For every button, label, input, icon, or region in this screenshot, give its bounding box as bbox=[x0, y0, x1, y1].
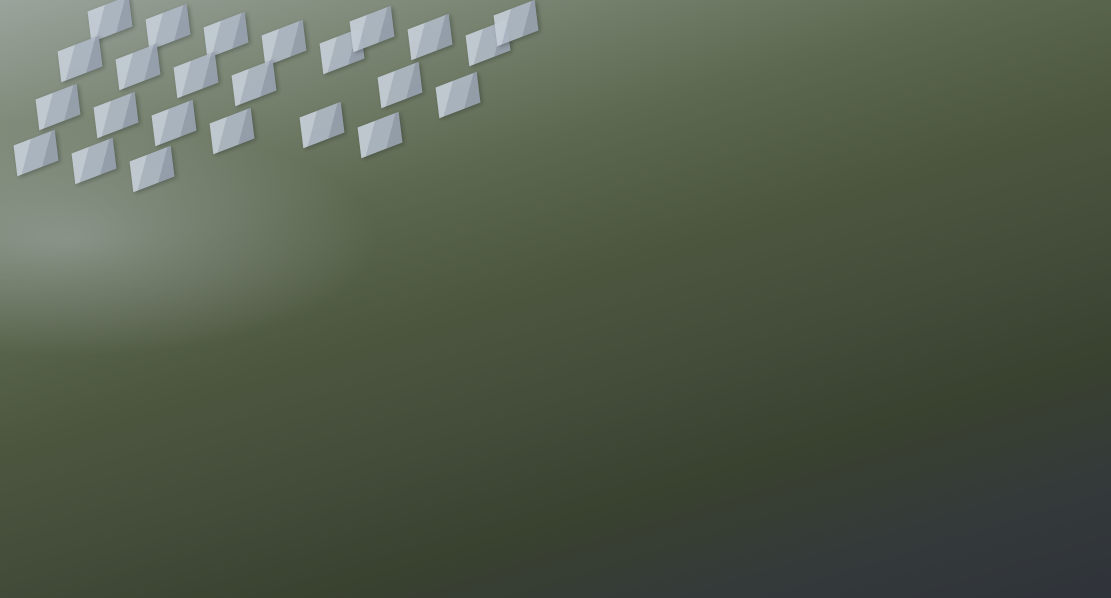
garden-hedge-row bbox=[265, 299, 364, 347]
tower-facade bbox=[768, 235, 856, 347]
tree bbox=[24, 144, 52, 169]
golden-tree bbox=[725, 397, 736, 408]
tree bbox=[750, 420, 774, 441]
garden-hedge-row bbox=[822, 365, 942, 422]
pool-deck bbox=[421, 214, 668, 414]
tree bbox=[345, 155, 367, 174]
background-forest-layer bbox=[0, 0, 1111, 598]
tree bbox=[220, 380, 244, 401]
residential-tower bbox=[336, 128, 434, 327]
garden-hedge-row bbox=[602, 320, 771, 395]
garden-hedge-row bbox=[593, 487, 745, 556]
tree bbox=[976, 240, 1008, 268]
neighboring-building bbox=[492, 540, 638, 576]
neighboring-building bbox=[146, 548, 282, 580]
tree bbox=[631, 351, 653, 370]
context-tower bbox=[1056, 0, 1111, 91]
tree bbox=[908, 288, 932, 309]
tree bbox=[230, 102, 258, 127]
garden-hedge-row bbox=[741, 425, 893, 494]
tree bbox=[235, 485, 265, 511]
tree bbox=[336, 518, 364, 543]
context-building-block bbox=[146, 4, 191, 50]
tree bbox=[212, 182, 244, 210]
tree bbox=[651, 301, 673, 320]
tree bbox=[578, 518, 602, 539]
tree bbox=[135, 525, 165, 551]
tree bbox=[765, 51, 795, 77]
context-tower bbox=[725, 22, 827, 195]
golden-tree bbox=[641, 227, 652, 238]
road-path bbox=[331, 309, 403, 343]
tree bbox=[63, 325, 101, 358]
context-tower bbox=[1036, 205, 1111, 422]
road-main bbox=[979, 392, 1061, 598]
tree bbox=[76, 466, 104, 491]
courtyard bbox=[510, 140, 640, 258]
golden-tree bbox=[921, 475, 931, 485]
haze-overlay bbox=[0, 0, 1111, 598]
golden-tree bbox=[939, 495, 949, 505]
tower-facade bbox=[340, 157, 430, 307]
residential-tower bbox=[688, 178, 762, 340]
slab-buildings-layer bbox=[0, 0, 1111, 598]
tower-facade bbox=[559, 51, 636, 219]
tree bbox=[830, 370, 854, 391]
aerial-rendering bbox=[0, 0, 1111, 598]
residential-slab bbox=[270, 244, 365, 341]
tree bbox=[131, 133, 161, 159]
golden-tree bbox=[683, 477, 694, 488]
road-path bbox=[433, 231, 548, 281]
tree bbox=[294, 184, 318, 205]
tree bbox=[437, 549, 463, 572]
golden-tree bbox=[498, 222, 510, 234]
tree bbox=[413, 301, 435, 320]
golden-tree bbox=[926, 516, 935, 525]
residential-slab bbox=[469, 192, 543, 292]
tree bbox=[1046, 466, 1074, 491]
golden-tree bbox=[650, 288, 662, 300]
golden-tree bbox=[447, 397, 457, 407]
golden-tree bbox=[553, 373, 564, 384]
golden-tree bbox=[464, 250, 476, 262]
tree bbox=[11, 39, 45, 69]
road-path bbox=[620, 223, 726, 270]
golden-tree bbox=[414, 340, 426, 352]
neighboring-building bbox=[0, 468, 44, 500]
road-dark bbox=[114, 388, 956, 561]
tree bbox=[1055, 369, 1089, 399]
tree bbox=[655, 49, 677, 68]
tree bbox=[491, 421, 513, 440]
roads-layer bbox=[0, 0, 1111, 598]
sales-main bbox=[858, 390, 1029, 573]
tree bbox=[1007, 391, 1037, 417]
rendering-page bbox=[0, 0, 1111, 598]
context-building-block bbox=[14, 130, 59, 176]
golden-tree bbox=[845, 307, 855, 317]
tree bbox=[820, 88, 852, 116]
residential-slab bbox=[204, 319, 357, 440]
neighboring-building bbox=[14, 516, 122, 550]
context-tower bbox=[988, 146, 1091, 324]
golden-tree bbox=[514, 170, 526, 182]
vehicle-bus_white bbox=[974, 429, 985, 450]
context-buildings-layer bbox=[0, 0, 1111, 598]
road-dark bbox=[0, 465, 588, 579]
garden-hedge-row bbox=[464, 260, 540, 299]
tree bbox=[6, 486, 34, 511]
context-building-block bbox=[36, 84, 81, 130]
garden-hedge-row bbox=[572, 267, 649, 307]
context-building-block bbox=[494, 0, 539, 46]
tree bbox=[496, 76, 516, 94]
vehicle-bus_blue bbox=[233, 223, 251, 237]
sales-white bbox=[835, 462, 883, 525]
golden-tree bbox=[622, 262, 634, 274]
road-east bbox=[1006, 493, 1111, 545]
tree bbox=[650, 490, 674, 511]
tree bbox=[809, 547, 835, 570]
neighboring-building bbox=[418, 580, 538, 598]
tree bbox=[251, 291, 273, 310]
tree bbox=[159, 229, 193, 259]
tree bbox=[538, 560, 562, 581]
residential-slab bbox=[376, 260, 510, 372]
vehicle-car_dark bbox=[1013, 469, 1022, 482]
tree bbox=[318, 84, 342, 105]
neighboring-building bbox=[186, 490, 334, 528]
tree bbox=[984, 446, 1008, 467]
tree bbox=[683, 529, 705, 548]
context-building-block bbox=[58, 36, 103, 82]
context-building-block bbox=[72, 138, 117, 184]
tree bbox=[952, 402, 976, 423]
tree bbox=[395, 125, 417, 144]
tree bbox=[711, 331, 733, 350]
garden-hedge-row bbox=[370, 315, 510, 379]
golden-tree bbox=[873, 427, 884, 438]
neighborhood-layer bbox=[0, 0, 1111, 598]
context-tower bbox=[967, 54, 1087, 213]
golden-tree bbox=[442, 270, 454, 282]
residential-slab bbox=[598, 428, 744, 548]
context-building-block bbox=[174, 52, 219, 98]
tree bbox=[110, 280, 146, 312]
context-building-block bbox=[232, 60, 277, 106]
tree bbox=[637, 543, 663, 566]
residential-slab bbox=[577, 206, 652, 301]
tree bbox=[842, 190, 870, 215]
tree bbox=[470, 370, 494, 391]
amenity-layer bbox=[0, 0, 1111, 598]
neighboring-building bbox=[338, 514, 486, 552]
vehicle-car_blue bbox=[994, 549, 1003, 562]
tree bbox=[972, 110, 1000, 135]
context-building-block bbox=[88, 0, 133, 42]
garden-hedge-row bbox=[370, 413, 510, 477]
residential-tower bbox=[450, 76, 538, 268]
golden-tree bbox=[815, 297, 826, 308]
road-path bbox=[145, 0, 344, 128]
context-building-block bbox=[358, 112, 403, 158]
tree bbox=[45, 545, 75, 571]
context-building-block bbox=[300, 102, 345, 148]
tree bbox=[871, 131, 901, 157]
golden-tree bbox=[387, 353, 398, 364]
pool-pavilion bbox=[543, 261, 580, 309]
tower-facade bbox=[128, 238, 227, 330]
tree bbox=[929, 191, 959, 217]
golden-tree bbox=[893, 447, 903, 457]
tree bbox=[258, 154, 282, 175]
tree bbox=[859, 409, 881, 428]
foreground-trees-layer bbox=[0, 0, 1111, 598]
golden-tree bbox=[940, 536, 949, 545]
tree bbox=[320, 420, 344, 441]
residential-slab bbox=[565, 346, 720, 468]
residential-slab bbox=[746, 370, 891, 486]
tower-buildings-layer bbox=[0, 0, 1111, 598]
tree bbox=[592, 252, 612, 270]
tree bbox=[199, 287, 229, 313]
garden-hedge-row bbox=[559, 403, 721, 475]
golden-tree bbox=[595, 149, 605, 159]
context-building-block bbox=[378, 62, 423, 108]
tree bbox=[1027, 289, 1061, 319]
tree bbox=[742, 507, 768, 530]
tree bbox=[130, 370, 166, 402]
sunken-garden bbox=[494, 308, 582, 380]
residential-slab bbox=[771, 294, 872, 369]
road-dark bbox=[82, 416, 148, 561]
residential-slab bbox=[403, 409, 563, 534]
tree bbox=[0, 397, 33, 427]
tree bbox=[21, 243, 51, 269]
residential-tower bbox=[764, 206, 860, 366]
garden-hedge-row bbox=[793, 333, 841, 398]
context-building-block bbox=[152, 100, 197, 146]
vehicles-people-layer bbox=[0, 0, 1111, 598]
residential-slab bbox=[607, 261, 770, 388]
sales-annex bbox=[846, 491, 953, 591]
context-tower bbox=[934, 0, 1047, 132]
golden-tree bbox=[563, 143, 573, 153]
golden-tree bbox=[751, 457, 762, 468]
golden-tree bbox=[407, 175, 417, 185]
tree bbox=[91, 101, 125, 131]
tree bbox=[548, 410, 572, 431]
residential-slab bbox=[224, 392, 370, 512]
pool bbox=[466, 251, 624, 365]
tree bbox=[71, 179, 105, 209]
tower-facade bbox=[691, 200, 759, 325]
residential-slab bbox=[827, 314, 942, 414]
vignette-overlay bbox=[0, 0, 1111, 598]
sales-upper bbox=[878, 375, 949, 439]
golden-tree bbox=[421, 387, 431, 397]
tree bbox=[288, 318, 312, 339]
context-building-block bbox=[408, 14, 453, 60]
tree bbox=[947, 321, 977, 347]
context-building-block bbox=[94, 92, 139, 138]
road-light bbox=[968, 124, 1111, 310]
residential-tower bbox=[124, 206, 232, 352]
tree bbox=[281, 133, 307, 156]
garden-hedge-row bbox=[397, 468, 563, 542]
golden-tree bbox=[503, 197, 514, 208]
golden-tree bbox=[522, 364, 534, 376]
golden-tree bbox=[435, 155, 445, 165]
context-building-block bbox=[436, 72, 481, 118]
context-building-block bbox=[130, 146, 175, 192]
tree bbox=[51, 73, 81, 99]
context-building-block bbox=[466, 20, 511, 66]
neighboring-building bbox=[48, 458, 180, 494]
tree bbox=[898, 458, 922, 479]
road-light bbox=[18, 227, 622, 529]
context-tower bbox=[678, 0, 751, 111]
tree bbox=[1021, 151, 1051, 177]
tree bbox=[939, 349, 965, 372]
tree bbox=[922, 554, 946, 575]
residential-tower bbox=[622, 96, 698, 256]
golden-tree bbox=[492, 354, 504, 366]
road-junction bbox=[900, 508, 1060, 598]
golden-tree bbox=[630, 200, 642, 212]
tree bbox=[687, 107, 713, 130]
context-building-block bbox=[320, 28, 365, 74]
tree bbox=[570, 470, 594, 491]
golden-tree bbox=[357, 343, 368, 354]
tree bbox=[531, 323, 549, 339]
context-building-block bbox=[210, 108, 255, 154]
garden-hedge-row bbox=[199, 376, 359, 448]
tower-facade bbox=[454, 102, 535, 250]
golden-tree bbox=[908, 550, 917, 559]
neighboring-building bbox=[296, 572, 422, 598]
golden-tree bbox=[694, 384, 706, 396]
tree bbox=[243, 223, 269, 246]
tree bbox=[183, 73, 209, 96]
tower-facade bbox=[625, 119, 695, 241]
tree bbox=[735, 157, 761, 180]
garden-hedge-row bbox=[219, 451, 371, 520]
neighboring-building bbox=[636, 556, 754, 588]
road-dark bbox=[188, 409, 251, 545]
context-tower bbox=[0, 190, 88, 339]
tree bbox=[887, 241, 917, 267]
context-building-block bbox=[262, 20, 307, 66]
context-building-block bbox=[116, 44, 161, 90]
tree bbox=[167, 457, 193, 480]
residential-tower bbox=[556, 26, 640, 236]
context-building-block bbox=[350, 6, 395, 52]
tree bbox=[923, 73, 949, 96]
tree bbox=[865, 225, 887, 244]
tree bbox=[105, 431, 131, 454]
tree bbox=[445, 95, 467, 114]
context-tower bbox=[795, 2, 933, 212]
tree bbox=[1083, 507, 1109, 530]
context-tower bbox=[860, 127, 948, 255]
context-building-block bbox=[204, 12, 249, 58]
residential-slab bbox=[376, 360, 510, 470]
